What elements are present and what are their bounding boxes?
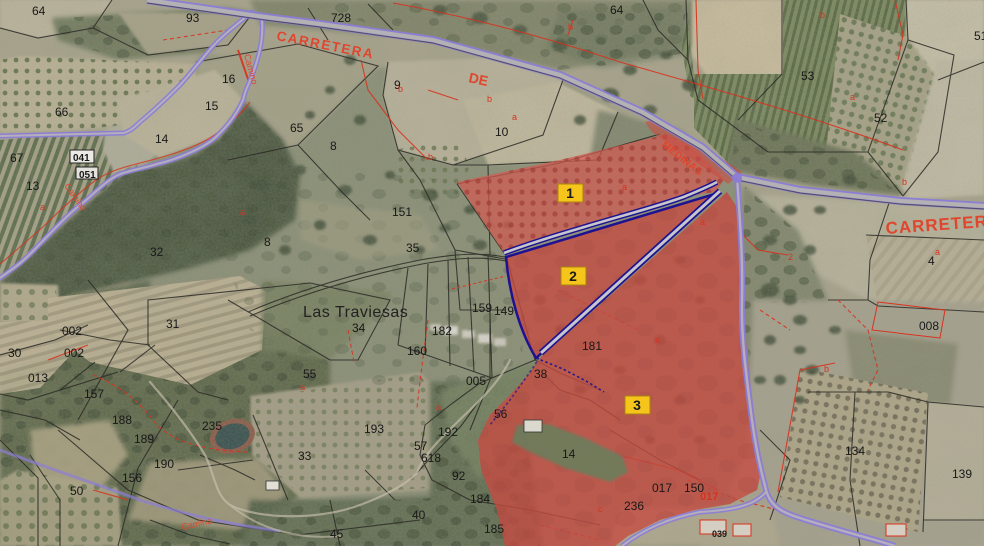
svg-text:3: 3 xyxy=(633,397,641,413)
svg-text:8: 8 xyxy=(330,139,337,153)
svg-text:017: 017 xyxy=(652,481,672,495)
svg-text:139: 139 xyxy=(952,467,972,481)
svg-text:157: 157 xyxy=(84,387,104,401)
svg-text:30: 30 xyxy=(8,346,22,360)
svg-text:008: 008 xyxy=(919,319,939,333)
svg-text:1: 1 xyxy=(566,185,574,201)
svg-text:38: 38 xyxy=(534,367,548,381)
svg-text:51: 51 xyxy=(974,29,984,43)
svg-text:236: 236 xyxy=(624,499,644,513)
svg-text:182: 182 xyxy=(432,324,452,338)
svg-text:b: b xyxy=(824,364,829,374)
svg-text:b: b xyxy=(820,10,825,20)
svg-text:66: 66 xyxy=(55,105,69,119)
svg-text:189: 189 xyxy=(134,432,154,446)
svg-text:192: 192 xyxy=(438,425,458,439)
svg-text:a: a xyxy=(655,335,660,345)
svg-text:a: a xyxy=(300,382,305,392)
svg-text:10: 10 xyxy=(495,125,509,139)
svg-text:50: 50 xyxy=(70,484,84,498)
svg-text:40: 40 xyxy=(412,508,426,522)
svg-text:a: a xyxy=(850,92,855,102)
svg-text:53: 53 xyxy=(801,69,815,83)
svg-text:4: 4 xyxy=(928,254,935,268)
svg-text:041: 041 xyxy=(73,153,90,164)
svg-text:013: 013 xyxy=(28,371,48,385)
svg-text:14: 14 xyxy=(562,447,576,461)
svg-text:92: 92 xyxy=(452,469,466,483)
svg-text:002: 002 xyxy=(62,324,82,338)
svg-text:93: 93 xyxy=(186,11,200,25)
svg-text:b: b xyxy=(398,84,403,94)
svg-text:65: 65 xyxy=(290,121,304,135)
svg-text:64: 64 xyxy=(32,4,46,18)
svg-text:55: 55 xyxy=(303,367,317,381)
svg-text:a: a xyxy=(622,182,627,192)
svg-text:181: 181 xyxy=(582,339,602,353)
svg-text:14: 14 xyxy=(155,132,169,146)
svg-text:002: 002 xyxy=(64,346,84,360)
svg-text:618: 618 xyxy=(421,451,441,465)
svg-text:728: 728 xyxy=(331,11,351,25)
svg-text:c: c xyxy=(598,504,603,514)
svg-text:13: 13 xyxy=(26,179,40,193)
svg-text:156: 156 xyxy=(122,471,142,485)
svg-text:Las Traviesas: Las Traviesas xyxy=(303,304,408,321)
svg-text:190: 190 xyxy=(154,457,174,471)
svg-text:16: 16 xyxy=(222,72,236,86)
svg-text:a: a xyxy=(700,217,705,227)
svg-text:b: b xyxy=(568,22,573,32)
svg-text:017: 017 xyxy=(700,491,718,503)
svg-text:235: 235 xyxy=(202,419,222,433)
svg-text:188: 188 xyxy=(112,413,132,427)
svg-text:a: a xyxy=(935,247,940,257)
svg-text:32: 32 xyxy=(150,245,164,259)
svg-text:b: b xyxy=(428,152,433,162)
svg-text:184: 184 xyxy=(470,492,490,506)
svg-text:151: 151 xyxy=(392,205,412,219)
svg-text:a: a xyxy=(240,207,245,217)
svg-text:159: 159 xyxy=(472,301,492,315)
svg-text:134: 134 xyxy=(845,444,865,458)
svg-text:193: 193 xyxy=(364,422,384,436)
svg-text:185: 185 xyxy=(484,522,504,536)
svg-text:2: 2 xyxy=(788,252,793,262)
svg-text:52: 52 xyxy=(874,111,888,125)
svg-text:b: b xyxy=(487,94,492,104)
svg-text:149: 149 xyxy=(494,304,514,318)
svg-text:160: 160 xyxy=(407,344,427,358)
svg-text:31: 31 xyxy=(166,317,180,331)
svg-text:039: 039 xyxy=(712,529,727,539)
svg-text:64: 64 xyxy=(610,3,624,17)
svg-text:a: a xyxy=(436,402,441,412)
svg-text:45: 45 xyxy=(330,527,344,541)
svg-text:34: 34 xyxy=(352,321,366,335)
svg-text:a: a xyxy=(512,112,517,122)
svg-text:a: a xyxy=(40,202,45,212)
svg-text:33: 33 xyxy=(298,449,312,463)
svg-text:005: 005 xyxy=(466,374,486,388)
svg-text:35: 35 xyxy=(406,241,420,255)
svg-text:15: 15 xyxy=(205,99,219,113)
svg-text:b: b xyxy=(902,177,907,187)
svg-text:8: 8 xyxy=(264,235,271,249)
svg-text:56: 56 xyxy=(494,407,508,421)
svg-text:67: 67 xyxy=(10,151,24,165)
svg-text:051: 051 xyxy=(79,170,96,181)
svg-text:2: 2 xyxy=(569,268,577,284)
